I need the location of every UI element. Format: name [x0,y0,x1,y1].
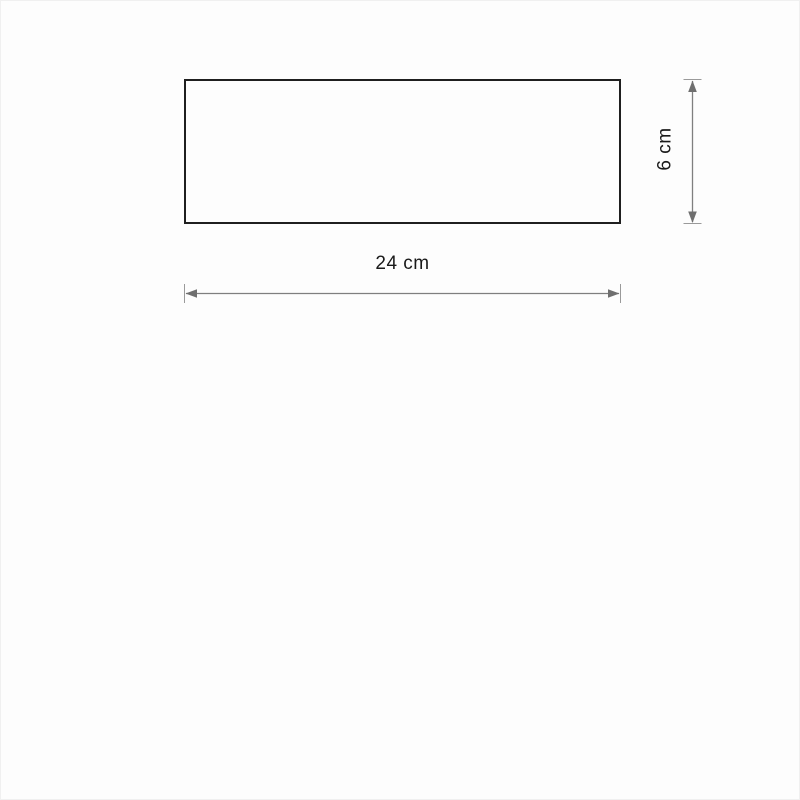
product-outline-rectangle [184,79,621,224]
width-dimension [185,284,621,303]
left-arrowhead-icon [186,289,198,298]
down-arrowhead-icon [688,212,697,224]
width-dimension-label: 24 cm [184,253,621,275]
height-dimension [684,80,702,224]
dimension-diagram: 24 cm 6 cm [0,0,800,800]
right-arrowhead-icon [608,289,620,298]
up-arrowhead-icon [688,81,697,93]
height-dimension-label: 6 cm [655,109,677,190]
